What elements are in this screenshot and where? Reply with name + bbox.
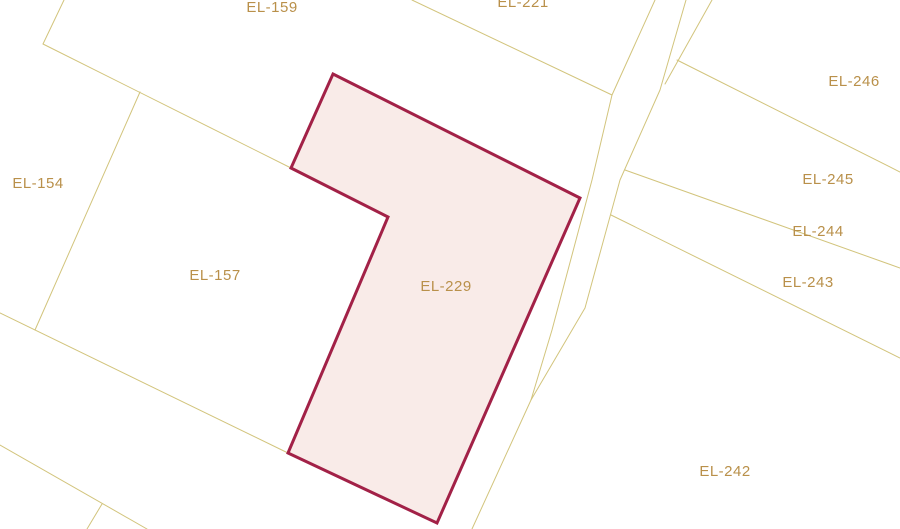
el244-el243-boundary-line	[611, 215, 900, 358]
parcel-label-el-221: EL-221	[497, 0, 548, 11]
el157-southwest-boundary-line	[0, 313, 288, 453]
parcel-label-el-229: EL-229	[420, 278, 471, 295]
parcel-label-el-246: EL-246	[828, 73, 879, 90]
parcel-map: EL-159EL-221EL-154EL-157EL-229EL-246EL-2…	[0, 0, 900, 529]
parcel-label-el-159: EL-159	[246, 0, 297, 16]
el154-el157-boundary-line	[35, 92, 140, 330]
el221-south-boundary-line	[412, 0, 612, 95]
road-east-wedge-line	[665, 0, 712, 84]
parcel-label-el-245: EL-245	[802, 171, 853, 188]
parcel-label-el-244: EL-244	[792, 223, 843, 240]
el245-el244-boundary-line	[625, 170, 900, 268]
el159-el157-boundary-line	[43, 44, 291, 168]
bottom-left-branch-line	[87, 504, 102, 529]
bottom-left-boundary-line	[0, 445, 147, 529]
el159-west-segment-line	[43, 0, 64, 44]
parcel-label-el-242: EL-242	[699, 463, 750, 480]
parcel-label-el-243: EL-243	[782, 274, 833, 291]
cadastral-map-view: EL-159EL-221EL-154EL-157EL-229EL-246EL-2…	[0, 0, 900, 529]
parcel-label-el-154: EL-154	[12, 175, 63, 192]
parcel-label-el-157: EL-157	[189, 267, 240, 284]
selected-parcel-el-229[interactable]	[288, 74, 580, 523]
